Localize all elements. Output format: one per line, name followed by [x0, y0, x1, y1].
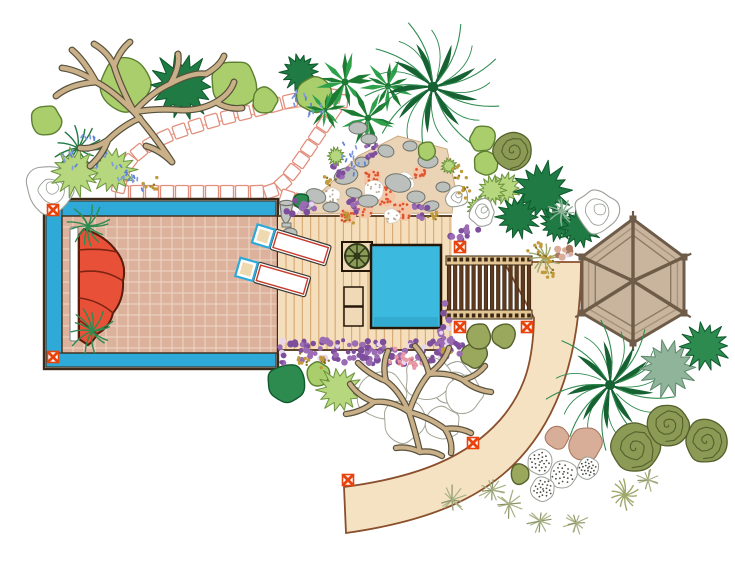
stipple-dot [535, 467, 537, 469]
stepping-stone [188, 118, 204, 134]
blue-flower [132, 179, 134, 184]
stipple-dot [539, 496, 541, 498]
stipple-dot [543, 490, 545, 492]
bridge-tick [521, 314, 525, 318]
blossom [393, 347, 397, 351]
stipple-dot [540, 480, 542, 482]
gold-flower [451, 167, 454, 170]
gold-flower [457, 191, 460, 194]
bridge-tick [484, 258, 488, 262]
terrace-blue-band-left [46, 201, 62, 353]
flower-mass [440, 310, 447, 317]
groundcover-dot [341, 219, 344, 222]
garden-plan-stage [0, 0, 735, 564]
gold-flower [155, 176, 158, 179]
flower-mass [569, 252, 574, 257]
gold-flower [465, 176, 468, 179]
stipple-dot [546, 488, 548, 490]
bridge-tick [466, 314, 470, 318]
pergola-post [630, 216, 637, 223]
pebble-dot [396, 214, 398, 216]
pebble-dot [375, 183, 377, 185]
flower-mass [475, 227, 481, 233]
gold-flower [541, 271, 544, 274]
flower-clump [350, 202, 356, 208]
gold-flower [432, 217, 435, 220]
groundcover-dot [394, 203, 397, 206]
blossom [400, 355, 404, 359]
gold-flower [347, 215, 350, 218]
blossom [413, 362, 417, 366]
flower-mass [559, 254, 566, 261]
flower-mass [306, 344, 310, 348]
stipple-dot [546, 460, 548, 462]
stipple-dot [593, 470, 595, 472]
groundcover-dot [423, 172, 426, 175]
stipple-dot [534, 458, 536, 460]
bridge-tick [503, 258, 507, 262]
flower-mass [465, 224, 470, 229]
stipple-dot [545, 466, 547, 468]
bridge-tick [453, 314, 457, 318]
stipple-dot [563, 471, 565, 473]
flower-mass [309, 202, 314, 207]
gold-flower [297, 358, 300, 361]
urn-rim [280, 200, 294, 205]
stipple-dot [545, 455, 547, 457]
stipple-dot [552, 476, 554, 478]
terrace-blue-band-bottom [46, 353, 276, 367]
flower-mass [365, 351, 370, 356]
groundcover-dot [381, 200, 384, 203]
stipple-dot [579, 467, 581, 469]
flower-mass [442, 336, 446, 340]
blossom [404, 358, 408, 362]
pool-deep-end [374, 317, 438, 326]
stipple-dot [555, 473, 557, 475]
bridge-tick [509, 258, 513, 262]
bridge-tick [509, 314, 513, 318]
flower-mass [352, 350, 356, 354]
blossom [398, 363, 401, 366]
pebble-dot [379, 184, 381, 186]
stone [407, 191, 425, 203]
stipple-dot [592, 465, 594, 467]
x-marker [343, 475, 354, 486]
groundcover-dot [373, 178, 376, 181]
bridge-tick [490, 258, 494, 262]
stipple-dot [591, 461, 593, 463]
blue-flower [136, 177, 138, 182]
bridge-tick [472, 314, 476, 318]
gold-flower [320, 366, 323, 369]
stepping-stone [191, 186, 204, 199]
blue-flower [353, 165, 355, 170]
groundcover-dot [402, 217, 405, 220]
groundcover-dot [379, 203, 382, 206]
pergola-hub [630, 278, 636, 284]
flower-mass [446, 317, 453, 324]
stipple-dot [535, 463, 537, 465]
stipple-dot [581, 463, 583, 465]
gold-flower [437, 215, 439, 217]
groundcover-dot [423, 169, 426, 172]
gold-flower [303, 357, 306, 360]
bridge-tick [453, 258, 457, 262]
x-marker [455, 322, 466, 333]
flower-mass [465, 234, 470, 239]
flower-mass [566, 245, 573, 252]
gold-flower [323, 175, 326, 178]
groundcover-dot [370, 212, 373, 215]
bridge-rail-top [446, 256, 532, 265]
stipple-dot [585, 461, 587, 463]
stipple-dot [542, 488, 544, 490]
gold-flower [537, 241, 540, 244]
flower-clump [371, 146, 376, 151]
flower-mass [335, 340, 340, 345]
gold-flower [352, 221, 355, 224]
bridge-tick [478, 314, 482, 318]
stipple-dot [543, 463, 545, 465]
gold-flower [300, 361, 303, 364]
bridge-slat [478, 265, 482, 310]
x-marker [48, 205, 59, 216]
groundcover-dot [415, 174, 418, 177]
gold-flower [324, 362, 326, 364]
pebble-dot [388, 212, 390, 214]
stipple-dot [544, 481, 546, 483]
groundcover-dot [383, 201, 386, 204]
stepping-stone [250, 185, 263, 198]
stipple-dot [562, 481, 564, 483]
blue-flower [310, 103, 312, 108]
flower-clump [424, 205, 430, 211]
x-marker [455, 242, 466, 253]
groundcover-dot [377, 174, 380, 177]
gold-flower [541, 256, 544, 259]
bridge-slat [472, 265, 476, 310]
groundcover-dot [363, 208, 366, 211]
gold-flower [155, 187, 158, 190]
stipple-dot [584, 470, 586, 472]
pebble-dot [370, 188, 372, 190]
stipple-dot [536, 492, 538, 494]
stipple-dot [539, 470, 541, 472]
stipple-dot [561, 467, 563, 469]
stipple-dot [542, 494, 544, 496]
gold-flower [552, 269, 554, 271]
flower-clump [345, 166, 350, 171]
gold-flower [430, 212, 433, 215]
stipple-dot [595, 466, 597, 468]
grass-blade [638, 480, 648, 481]
pebble-dot [411, 178, 413, 180]
flower-mass [554, 246, 559, 251]
stipple-dot [546, 484, 548, 486]
sail-pole [70, 227, 78, 341]
stipple-dot [564, 464, 566, 466]
flower-mass [442, 300, 449, 307]
palm-center [365, 115, 372, 122]
gold-flower [344, 219, 346, 221]
gold-flower [427, 216, 429, 218]
gold-flower [545, 266, 548, 269]
flower-mass [446, 326, 452, 332]
gold-flower [327, 180, 330, 183]
bridge-tick [521, 258, 525, 262]
stipple-dot [587, 467, 589, 469]
groundcover-dot [419, 174, 422, 177]
bridge-slat [466, 265, 470, 310]
bridge-tick [496, 258, 500, 262]
bridge-tick [496, 314, 500, 318]
stepping-stone [236, 186, 249, 199]
flower-mass [447, 337, 454, 344]
stipple-dot [540, 487, 542, 489]
bridge-slat [503, 265, 507, 310]
stipple-dot [571, 469, 573, 471]
stipple-dot [538, 454, 540, 456]
flower-mass [378, 350, 383, 355]
flower-mass [279, 360, 283, 364]
bridge-tick [490, 314, 494, 318]
stipple-dot [541, 460, 543, 462]
pergola-post [681, 254, 688, 261]
pebble-dot [367, 184, 369, 186]
stipple-dot [582, 473, 584, 475]
stepping-stone [221, 186, 234, 199]
stipple-dot [567, 477, 569, 479]
stipple-dot [550, 493, 552, 495]
gold-flower [329, 184, 331, 186]
stipple-dot [537, 458, 539, 460]
stipple-dot [555, 478, 557, 480]
pebble-dot [370, 186, 372, 188]
urn-base [282, 223, 291, 227]
bridge-tick [515, 314, 519, 318]
flower-mass [427, 341, 433, 347]
stipple-dot [548, 480, 550, 482]
gold-flower [345, 211, 348, 214]
groundcover-dot [386, 201, 389, 204]
pebble-dot [337, 199, 339, 201]
stipple-dot [531, 461, 533, 463]
flower-mass [292, 339, 298, 345]
x-marker [522, 322, 533, 333]
stipple-dot [567, 481, 569, 483]
grass-blade [498, 504, 509, 505]
gold-flower [319, 358, 322, 361]
stipple-dot [553, 470, 555, 472]
flower-mass [304, 202, 308, 206]
blue-flower [323, 109, 325, 114]
flower-mass [449, 234, 455, 240]
groundcover-dot [350, 212, 353, 215]
stipple-dot [530, 458, 532, 460]
shrub [268, 365, 304, 403]
blossom [401, 364, 404, 367]
pebble-dot [393, 217, 395, 219]
bridge-tick [460, 314, 464, 318]
flower-mass [459, 228, 465, 234]
stepping-stone [206, 186, 219, 199]
pool-step [344, 307, 363, 326]
bridge-tick [460, 258, 464, 262]
gold-flower [460, 170, 463, 173]
gold-flower [466, 186, 468, 188]
bridge-slat [490, 265, 494, 310]
stone [436, 182, 450, 192]
stipple-dot [558, 482, 560, 484]
groundcover-dot [385, 188, 388, 191]
flower-clump [336, 173, 341, 178]
gold-flower [150, 185, 153, 188]
flower-mass [347, 355, 352, 360]
bridge-tick [447, 258, 451, 262]
pebble-dot [329, 196, 331, 198]
flower-clump [420, 212, 424, 216]
gold-flower [468, 189, 471, 192]
pebble-dot [396, 210, 398, 212]
stipple-dot [534, 454, 536, 456]
stone [349, 122, 367, 134]
groundcover-dot [385, 193, 388, 196]
pebble-dot [326, 190, 328, 192]
flower-mass [352, 340, 359, 347]
blossom [408, 361, 412, 365]
pergola-post [579, 254, 586, 261]
flower-clump [351, 197, 356, 202]
bridge-tick [478, 258, 482, 262]
bridge-tick [472, 258, 476, 262]
pebble-dot [387, 218, 389, 220]
stipple-dot [559, 463, 561, 465]
pergola-post [681, 310, 688, 317]
flower-mass [304, 209, 311, 216]
stipple-dot [567, 472, 569, 474]
flower-mass [347, 343, 351, 347]
stipple-dot [593, 473, 595, 475]
stepping-stone [176, 186, 189, 199]
gold-flower [551, 272, 554, 275]
flower-clump [419, 205, 425, 211]
stipple-dot [539, 461, 541, 463]
gold-flower [537, 253, 539, 255]
pergola-post [630, 340, 637, 347]
stipple-dot [540, 491, 542, 493]
gold-flower [307, 358, 310, 361]
stipple-dot [542, 484, 544, 486]
stipple-dot [588, 463, 590, 465]
pebble-dot [378, 191, 380, 193]
flower-mass [292, 198, 298, 204]
gold-flower [539, 245, 542, 248]
flower-mass [277, 344, 282, 349]
gold-flower [326, 177, 328, 179]
stone [358, 195, 378, 207]
flower-clump [341, 171, 346, 176]
stipple-dot [549, 489, 551, 491]
stipple-dot [557, 467, 559, 469]
flower-mass [341, 359, 348, 366]
blue-flower [123, 175, 125, 180]
pool-water [371, 245, 441, 328]
bridge-slat [496, 265, 500, 310]
swirl-center [605, 380, 615, 390]
gold-flower [533, 244, 536, 247]
bridge-tick [484, 314, 488, 318]
stipple-dot [589, 474, 591, 476]
flower-mass [310, 341, 316, 347]
pool-step [344, 287, 363, 306]
groundcover-dot [362, 211, 365, 214]
stepping-stone [204, 113, 220, 129]
shrub [511, 464, 528, 485]
stipple-dot [581, 469, 583, 471]
bridge-rail-bottom [446, 310, 532, 319]
stipple-dot [585, 465, 587, 467]
pebble-dot [376, 191, 378, 193]
flower-mass [374, 354, 379, 359]
flower-mass [457, 234, 464, 241]
stipple-dot [570, 474, 572, 476]
gold-flower [457, 164, 460, 167]
flower-mass [366, 359, 373, 366]
bridge-slat [521, 265, 525, 310]
shrub [470, 126, 495, 151]
flower-mass [346, 350, 351, 355]
stipple-dot [541, 452, 543, 454]
stone [323, 202, 339, 212]
pebble-dot [331, 193, 333, 195]
groundcover-dot [374, 174, 377, 177]
bridge-slat [527, 265, 531, 310]
bridge-tick [515, 258, 519, 262]
gold-flower [144, 185, 147, 188]
groundcover-dot [368, 173, 371, 176]
flower-mass [322, 338, 328, 344]
groundcover-dot [340, 213, 343, 216]
flower-clump [364, 144, 368, 148]
x-marker [48, 352, 59, 363]
groundcover-dot [377, 171, 380, 174]
stipple-dot [563, 476, 565, 478]
stipple-dot [548, 462, 550, 464]
groundcover-dot [407, 216, 410, 219]
garden-plan-canvas [0, 0, 735, 564]
groundcover-dot [365, 172, 368, 175]
stipple-dot [590, 471, 592, 473]
bridge-tick [466, 258, 470, 262]
groundcover-dot [414, 176, 417, 179]
stipple-dot [550, 485, 552, 487]
blossom [394, 355, 398, 359]
stipple-dot [585, 473, 587, 475]
bridge-slat [484, 265, 488, 310]
stipple-dot [541, 467, 543, 469]
pebble-dot [332, 189, 334, 191]
blossom [388, 360, 392, 364]
groundcover-dot [372, 171, 375, 174]
blue-flower [353, 155, 355, 160]
groundcover-dot [389, 200, 392, 203]
gold-flower [552, 260, 554, 262]
groundcover-dot [387, 198, 390, 201]
stipple-dot [538, 483, 540, 485]
stepping-stone [161, 186, 174, 199]
flower-mass [440, 324, 446, 330]
